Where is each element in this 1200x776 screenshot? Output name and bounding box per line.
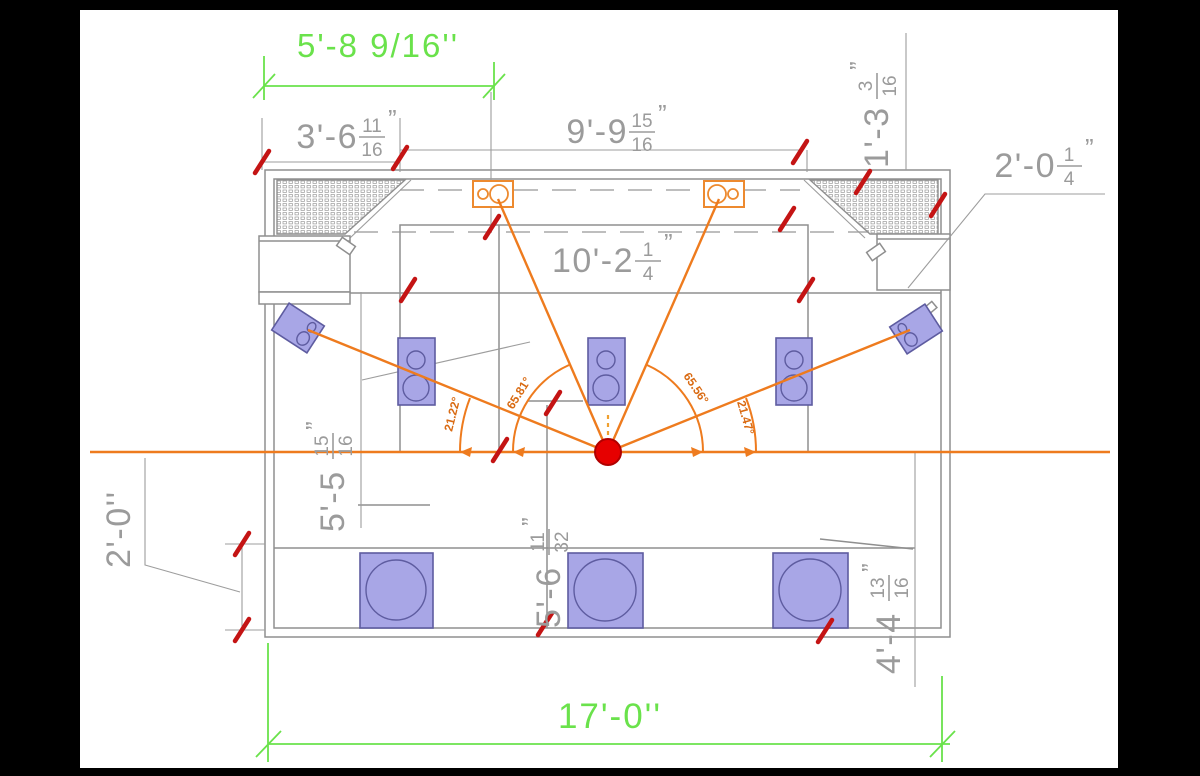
- dim-right-rear-den: 16: [892, 577, 913, 598]
- dim-center-listening-whole: 5'-6: [530, 566, 568, 628]
- dim-front-right-den: 16: [880, 75, 901, 96]
- dim-left-step: 2'-0'': [100, 490, 138, 568]
- cabinet-left: [259, 236, 355, 304]
- dim-front-left-whole: 3'-6: [296, 118, 358, 156]
- dim-front-center-num: 15: [631, 111, 652, 132]
- dim-front-left-den: 16: [361, 140, 382, 161]
- cad-drawing-canvas: 5'-8 9/16'' 17'-0'': [0, 0, 1200, 776]
- dim-right-rear-whole: 4'-4: [870, 612, 908, 674]
- dim-center-listening-num: 11: [528, 532, 549, 552]
- dim-front-center-unit: ”: [658, 99, 667, 129]
- listening-position-marker: [595, 439, 621, 465]
- subwoofer-left: [360, 553, 433, 628]
- dim-stage-width-den: 4: [643, 264, 654, 285]
- dim-stage-width-whole: 10'-2: [552, 242, 634, 280]
- dim-cabinet-depth-num: 1: [1064, 145, 1075, 166]
- dim-cabinet-depth-den: 4: [1064, 169, 1075, 190]
- subwoofer-right: [773, 553, 848, 628]
- dim-right-rear-unit: ”: [856, 563, 886, 572]
- dim-top-green-label: 5'-8 9/16'': [297, 27, 459, 64]
- ceiling-speaker-right: [704, 181, 744, 207]
- dim-left-listening-whole: 5'-5: [314, 470, 352, 532]
- dim-center-listening-unit: ”: [516, 517, 546, 526]
- dim-front-right-whole: 1'-3: [858, 106, 896, 168]
- dim-front-left-num: 11: [362, 116, 382, 137]
- dim-center-listening-den: 32: [552, 531, 573, 552]
- dim-left-step-label: 2'-0'': [100, 490, 138, 568]
- dim-cabinet-depth-whole: 2'-0: [994, 147, 1056, 185]
- front-speaker-center: [588, 338, 625, 405]
- dim-front-center-den: 16: [631, 135, 652, 156]
- dim-front-center-whole: 9'-9: [566, 113, 628, 151]
- dim-right-rear-num: 13: [868, 577, 889, 598]
- front-speaker-left: [398, 338, 435, 405]
- dim-cabinet-depth-unit: ”: [1085, 133, 1094, 163]
- dim-front-left-unit: ”: [388, 104, 397, 134]
- room-plan-svg: 5'-8 9/16'' 17'-0'': [0, 0, 1200, 776]
- ceiling-speaker-left: [473, 181, 513, 207]
- dim-stage-width-unit: ”: [664, 228, 673, 258]
- dim-left-listening-unit: ”: [300, 421, 330, 430]
- dim-left-listening-den: 16: [336, 435, 357, 456]
- dim-front-right-num: 3: [856, 81, 877, 92]
- dim-bottom-green-label: 17'-0'': [558, 697, 662, 736]
- dim-stage-width-num: 1: [643, 240, 654, 261]
- subwoofer-center: [568, 553, 643, 628]
- dim-left-listening-num: 15: [312, 435, 333, 456]
- dim-front-right-unit: ”: [844, 61, 874, 70]
